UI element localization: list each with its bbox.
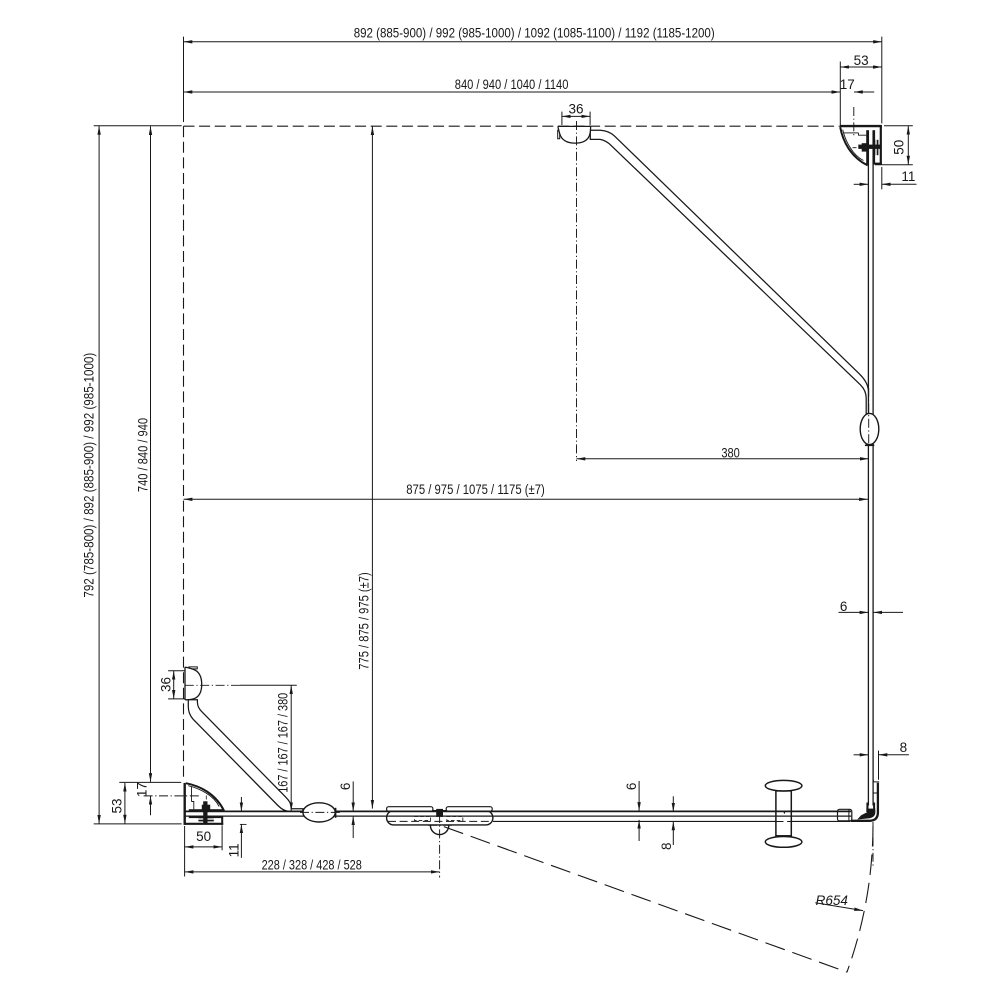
svg-text:792 (785-800) / 892 (885-900): 792 (785-800) / 892 (885-900) / 992 (985… <box>82 353 97 598</box>
svg-text:8: 8 <box>900 740 908 755</box>
svg-text:50: 50 <box>892 140 907 155</box>
svg-text:740 / 840 / 940: 740 / 840 / 940 <box>135 418 150 492</box>
svg-text:8: 8 <box>659 842 674 850</box>
svg-text:36: 36 <box>568 102 583 117</box>
svg-text:53: 53 <box>854 53 869 68</box>
svg-text:36: 36 <box>158 677 173 692</box>
svg-text:11: 11 <box>901 169 915 184</box>
svg-text:228 / 328 / 428 / 528: 228 / 328 / 428 / 528 <box>262 857 362 872</box>
svg-text:17: 17 <box>135 782 150 797</box>
svg-text:892 (885-900) / 992 (985-1000): 892 (885-900) / 992 (985-1000) / 1092 (1… <box>354 25 715 40</box>
svg-text:167 / 167 / 167 / 380: 167 / 167 / 167 / 380 <box>276 693 291 793</box>
svg-text:380: 380 <box>721 445 740 460</box>
svg-text:17: 17 <box>840 77 855 92</box>
svg-text:50: 50 <box>196 829 211 844</box>
svg-text:6: 6 <box>840 599 848 614</box>
svg-text:6: 6 <box>624 783 639 791</box>
svg-text:840 / 940 / 1040 / 1140: 840 / 940 / 1040 / 1140 <box>455 77 569 92</box>
svg-text:875 / 975 / 1075 / 1175 (±7): 875 / 975 / 1075 / 1175 (±7) <box>406 482 545 497</box>
svg-text:6: 6 <box>338 783 353 791</box>
svg-text:11: 11 <box>227 843 242 857</box>
svg-text:775 / 875 / 975 (±7): 775 / 875 / 975 (±7) <box>356 572 371 669</box>
svg-text:53: 53 <box>110 798 125 813</box>
svg-text:R654: R654 <box>816 893 848 908</box>
